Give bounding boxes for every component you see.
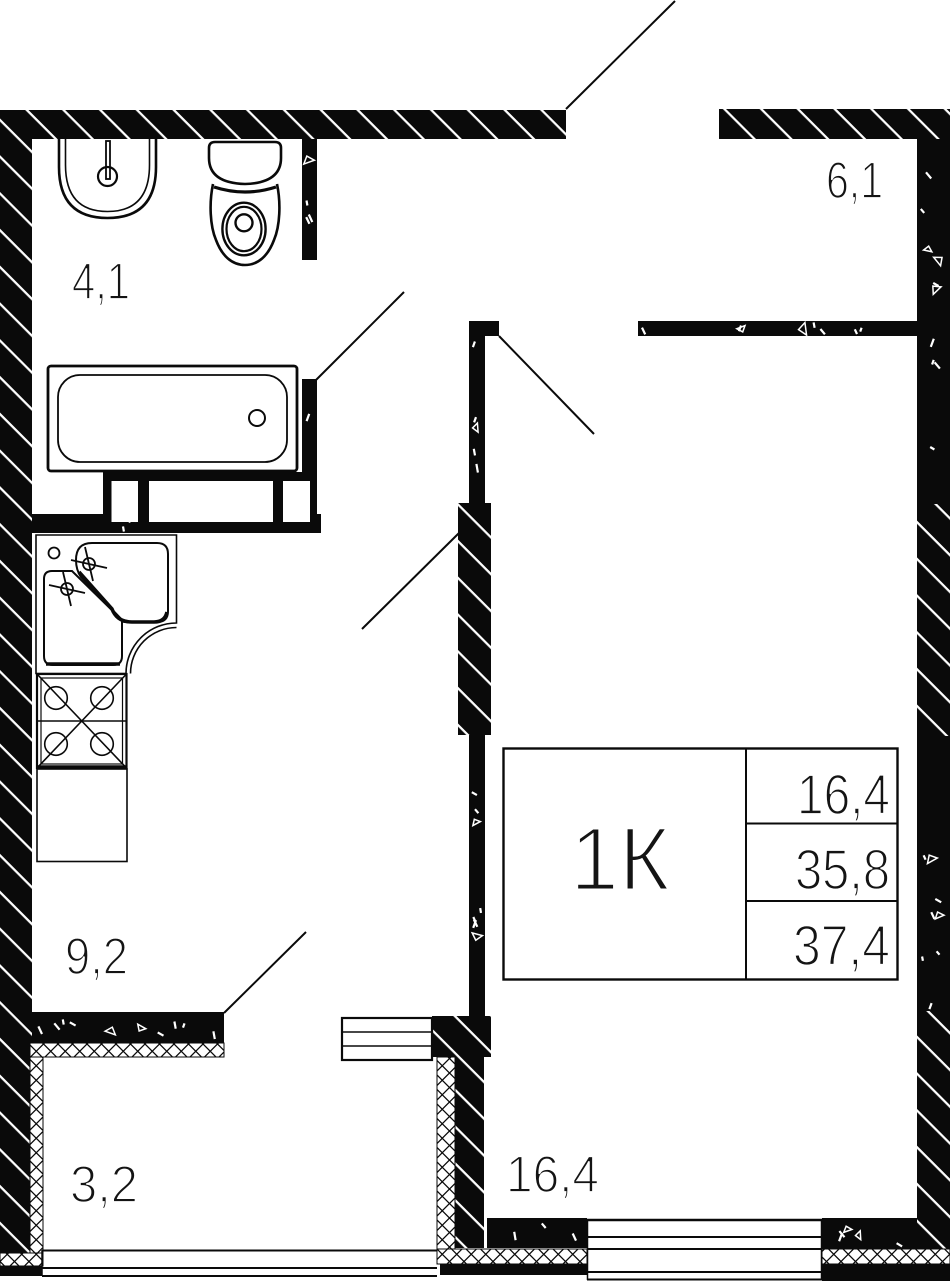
svg-text:9,2: 9,2 — [65, 928, 128, 986]
svg-text:3,2: 3,2 — [70, 1156, 138, 1214]
svg-text:35,8: 35,8 — [795, 838, 890, 902]
svg-text:6,1: 6,1 — [826, 152, 883, 210]
svg-text:37,4: 37,4 — [793, 914, 890, 978]
svg-text:1К: 1К — [570, 810, 670, 910]
svg-text:16,4: 16,4 — [506, 1146, 599, 1204]
svg-text:4,1: 4,1 — [72, 253, 130, 311]
svg-text:16,4: 16,4 — [797, 763, 890, 827]
